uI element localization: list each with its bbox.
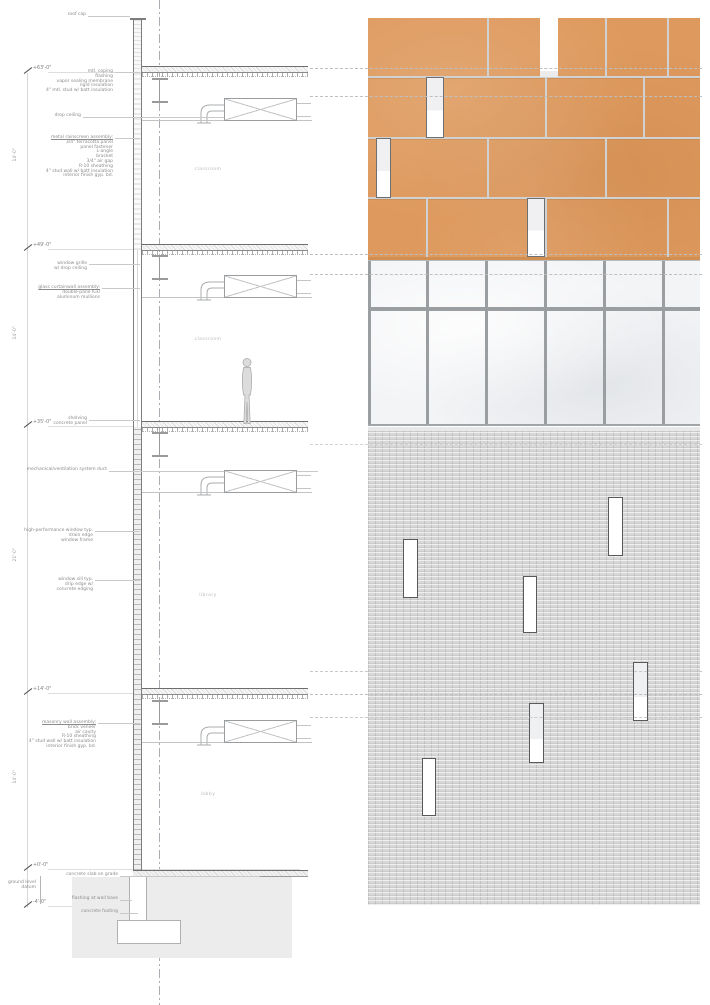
dimension-line [27, 73, 28, 907]
callout-slab-on-grade: concrete slab on grade [38, 873, 118, 878]
leader-line [88, 16, 130, 17]
parapet-wall [133, 20, 142, 73]
floor-slab [142, 244, 308, 251]
facade-slot-sill [540, 71, 558, 77]
mechanical-unit [224, 98, 297, 121]
panel-joint [545, 199, 547, 257]
masonry-wall [133, 427, 142, 905]
architectural-drawing: +63'-0" +49'-0" +35'-0" +14'-0" +0'-0" -… [0, 0, 710, 1005]
leader-line [120, 913, 138, 914]
leader-line [89, 420, 140, 421]
steel-beam [152, 255, 168, 280]
roof-slab [142, 66, 308, 73]
floor-slab [142, 421, 308, 428]
mullion [368, 261, 371, 424]
brick-top-course [368, 427, 700, 431]
mullion [426, 261, 429, 424]
callout-wall-base: flashing at wall base [38, 897, 118, 902]
callout-parapet: mtl. coping flashing vapor sealing membr… [20, 70, 113, 94]
mullion [662, 261, 665, 424]
leader-line [98, 723, 140, 724]
facade-window [527, 198, 545, 257]
panel-joint [368, 76, 700, 78]
panel-joint [545, 78, 547, 137]
mechanical-unit [224, 275, 297, 298]
panel-joint [605, 139, 607, 197]
dimension-label: 14'-0" [13, 326, 18, 340]
steel-beam [152, 78, 168, 103]
level-dash-line [310, 274, 702, 275]
foundation-stem [129, 877, 147, 921]
grid-centerline [159, 0, 160, 1005]
leader-line [115, 72, 140, 73]
level-tick [24, 244, 32, 251]
room-label: classroom [178, 337, 238, 342]
concrete-footing [117, 920, 181, 944]
terracotta-band [368, 18, 700, 260]
transom [368, 307, 700, 311]
dimension-label: 14'-0" [13, 148, 18, 162]
callout-curtainwall: glass curtainwall assembly: double-pane … [15, 286, 100, 300]
level-dash-line [310, 444, 702, 445]
duct-stub [297, 293, 311, 294]
duct-stub [297, 725, 311, 726]
duct-stub [297, 475, 311, 476]
curtainwall-band [368, 260, 700, 426]
level-dash-line [310, 254, 702, 255]
rainscreen-wall [133, 73, 142, 250]
curtainwall-section [133, 250, 142, 427]
callout-mech-duct: mechanical/ventilation system duct [10, 468, 107, 473]
mullion [544, 261, 547, 424]
duct-stub [297, 103, 311, 104]
floor-metal-deck [142, 695, 308, 699]
brick-band [368, 427, 700, 905]
facade-slot [540, 18, 558, 71]
mullion [485, 261, 488, 424]
callout-drop-ceiling: drop ceiling [30, 114, 81, 119]
facade-window [426, 77, 444, 138]
callout-window-grille: window grille w/ drop ceiling [30, 262, 87, 272]
leader-line [95, 580, 140, 581]
panel-joint [643, 78, 645, 137]
duct-stub [297, 116, 311, 117]
room-label: library [178, 593, 238, 598]
leader-line [120, 876, 260, 877]
facade-window [529, 703, 544, 763]
panel-joint [667, 199, 669, 257]
dimension-label: 21'-0" [13, 548, 18, 562]
leader-line [95, 531, 140, 532]
facade-window [523, 576, 537, 633]
facade-window [608, 497, 623, 556]
callout-ground-datum: ground level datum [4, 881, 36, 891]
facade-window [422, 758, 436, 816]
leader-line [102, 288, 140, 289]
leader-line [89, 264, 140, 265]
leader-line [115, 138, 140, 139]
callout-masonry: masonry wall assembly: brick veneer air … [18, 721, 96, 750]
room-label: classroom [178, 167, 238, 172]
duct-stub [297, 488, 311, 489]
level-dash-line [310, 671, 702, 672]
steel-beam [152, 432, 168, 457]
facade-window [376, 138, 391, 198]
panel-joint [426, 199, 428, 257]
callout-window-sill: window sill typ. drip edge w/ concrete e… [10, 578, 93, 592]
roof-metal-deck [142, 73, 308, 77]
mullion [603, 261, 606, 424]
level-dash-line [310, 694, 702, 695]
mechanical-unit [224, 470, 297, 493]
level-dash-line [310, 96, 702, 97]
facade-elevation [368, 18, 700, 905]
facade-window [403, 539, 418, 598]
panel-joint [487, 139, 489, 197]
earth-mass [72, 877, 292, 958]
human-figure [235, 357, 259, 426]
level-tick [24, 688, 32, 695]
callout-footing: concrete footing [38, 910, 118, 915]
steel-beam [152, 700, 168, 725]
room-label: lobby [178, 792, 238, 797]
leader-line [120, 900, 132, 901]
callout-rainscreen: metal rainscreen assembly: 3/4" terracot… [20, 136, 113, 179]
level-tick [24, 901, 32, 908]
level-label: +49'-0" [33, 243, 51, 248]
floor-slab [142, 688, 308, 695]
callout-shelving: shelving concrete panel [30, 417, 87, 427]
level-tick [24, 864, 32, 871]
level-label: +0'-0" [33, 863, 48, 868]
level-dash-line [310, 717, 702, 718]
callout-roof-cap: roof cap [50, 13, 86, 18]
dimension-label: 14'-0" [13, 770, 18, 784]
panel-joint [368, 137, 700, 139]
callout-window-head: high-performance window typ. drain edge … [10, 529, 93, 543]
duct-stub [297, 738, 311, 739]
level-label: +14'-0" [33, 687, 51, 692]
duct-stub [297, 280, 311, 281]
mechanical-unit [224, 720, 297, 743]
level-dash-line [310, 68, 702, 69]
